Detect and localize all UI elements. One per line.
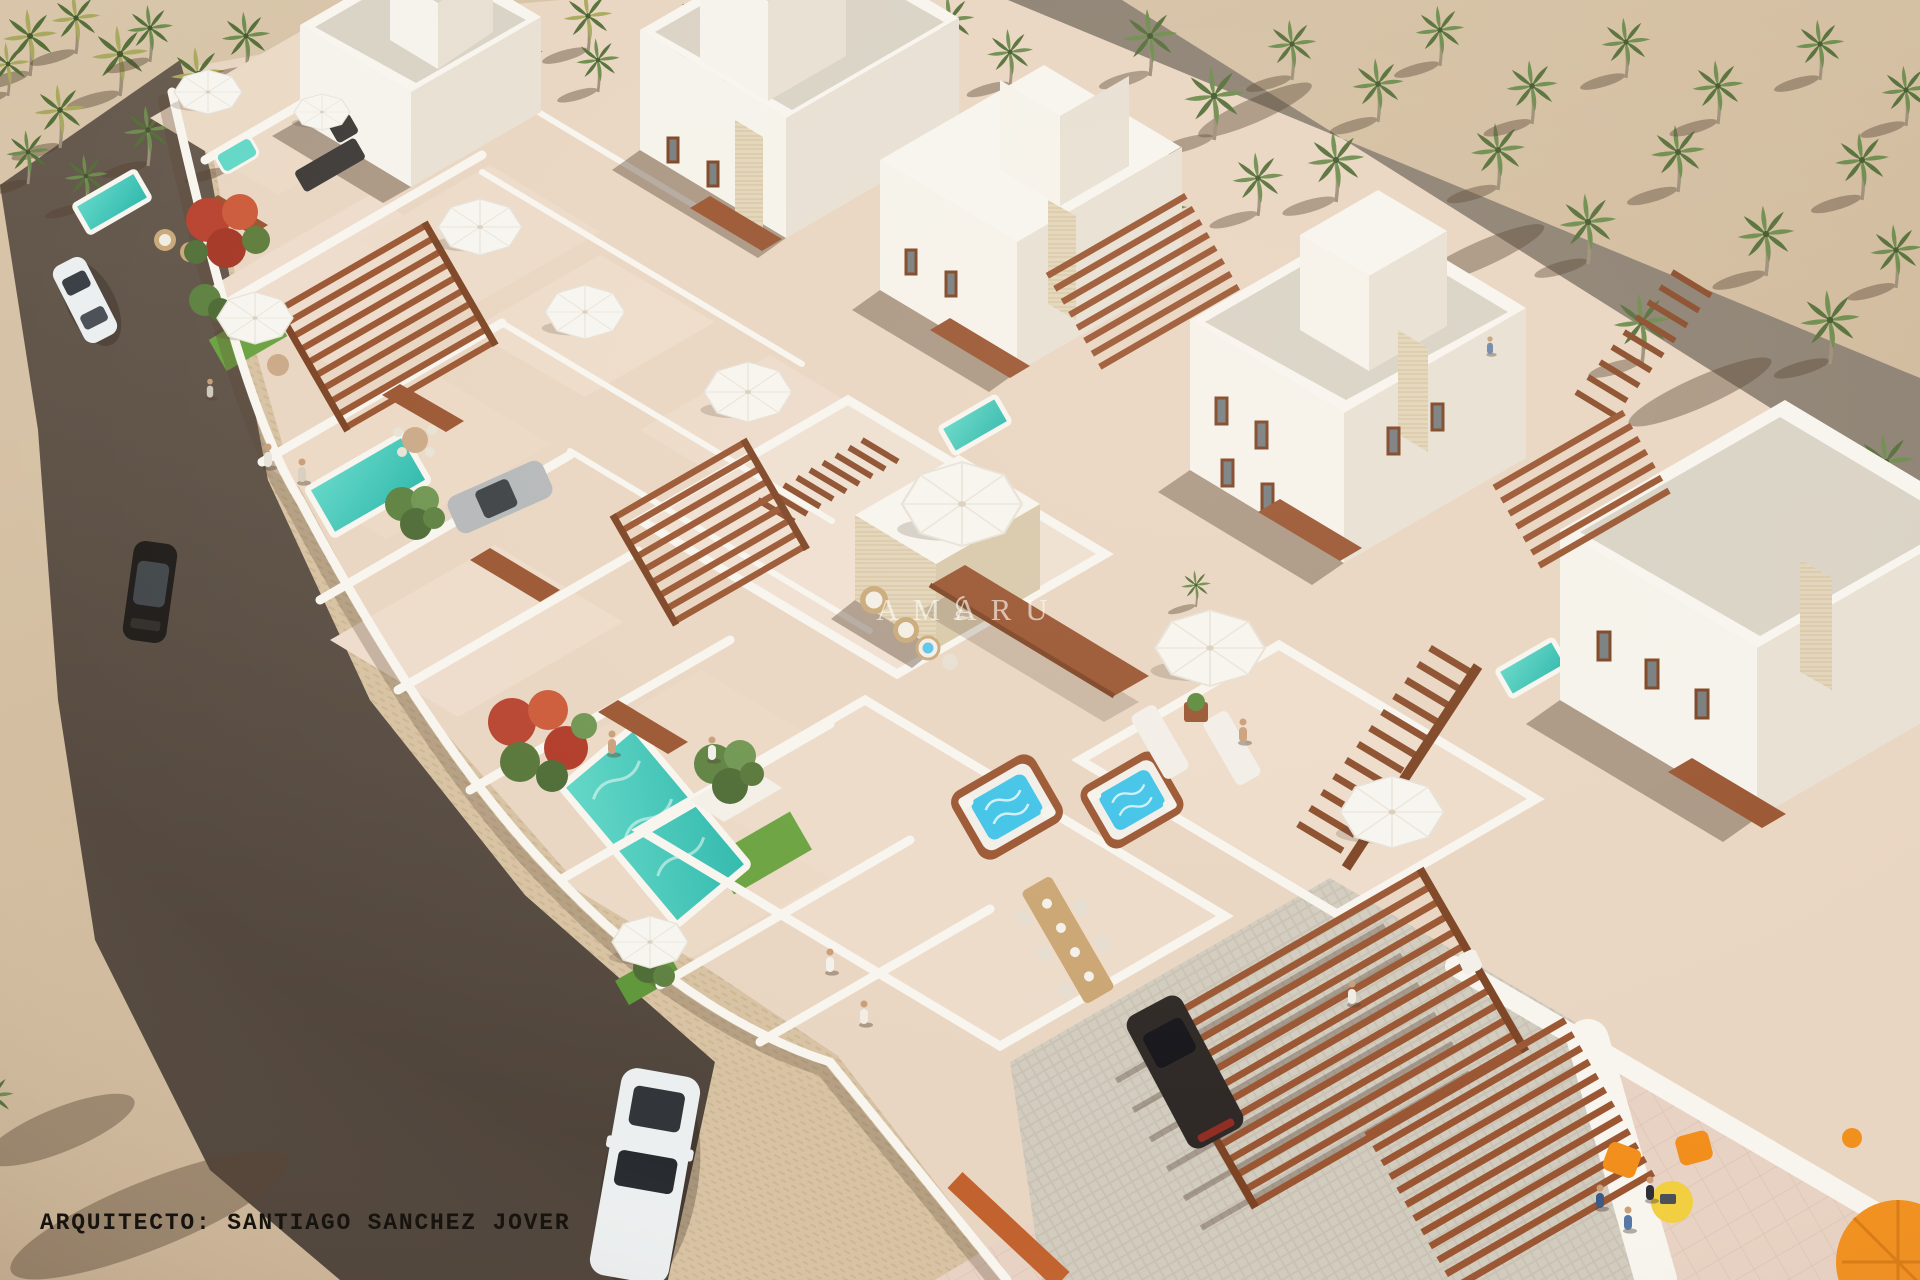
architect-credit: ARQUITECTO: SANTIAGO SANCHEZ JOVER: [40, 1210, 570, 1236]
architectural-render: AMARU ARQUITECTO: SANTIAGO SANCHEZ JOVER: [0, 0, 1920, 1280]
render-scene: [0, 0, 1920, 1280]
lighting-vignette: [0, 0, 1920, 1280]
